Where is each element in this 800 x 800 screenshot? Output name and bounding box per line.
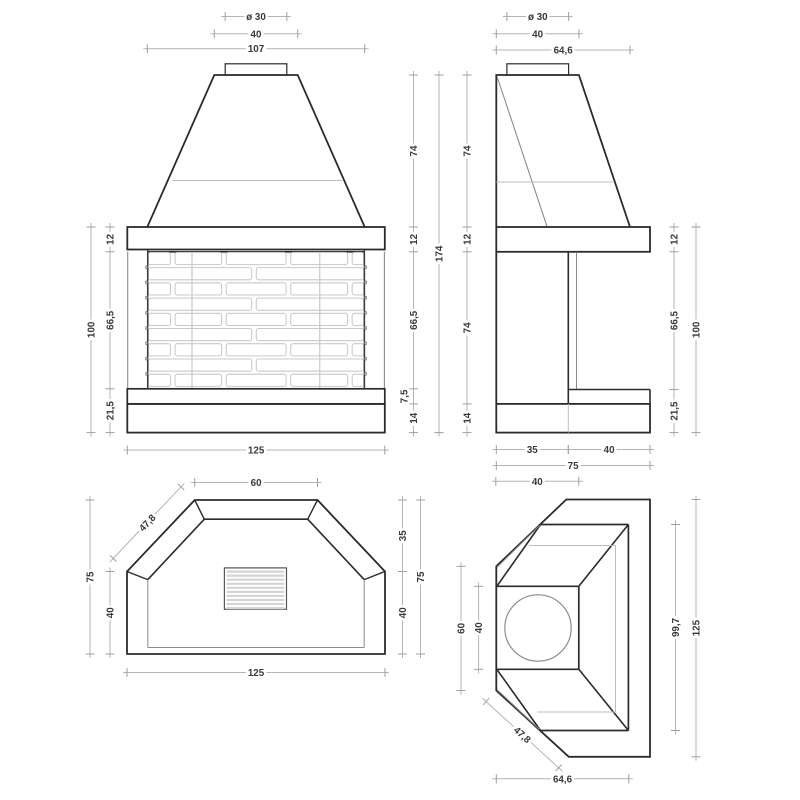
svg-text:125: 125: [248, 668, 265, 679]
svg-text:35: 35: [527, 445, 538, 456]
svg-text:12: 12: [463, 233, 474, 244]
svg-text:ø 30: ø 30: [528, 12, 548, 23]
svg-text:99,7: 99,7: [671, 617, 682, 637]
svg-text:21,5: 21,5: [670, 401, 681, 421]
svg-text:21,5: 21,5: [106, 401, 117, 421]
svg-text:12: 12: [409, 233, 420, 244]
svg-text:75: 75: [568, 461, 579, 472]
svg-text:40: 40: [532, 29, 543, 40]
svg-text:7,5: 7,5: [400, 389, 411, 403]
svg-text:12: 12: [106, 233, 117, 244]
svg-text:ø 30: ø 30: [246, 12, 266, 23]
svg-text:64,6: 64,6: [554, 46, 574, 57]
svg-text:125: 125: [692, 619, 703, 636]
svg-text:40: 40: [106, 607, 117, 618]
svg-text:40: 40: [474, 622, 485, 633]
svg-text:40: 40: [251, 29, 262, 40]
svg-text:75: 75: [416, 571, 427, 582]
svg-text:100: 100: [692, 321, 703, 338]
svg-text:66,5: 66,5: [106, 310, 117, 330]
svg-text:40: 40: [604, 445, 615, 456]
svg-text:12: 12: [670, 233, 681, 244]
svg-text:74: 74: [409, 145, 420, 156]
svg-text:125: 125: [248, 446, 265, 457]
svg-text:40: 40: [398, 607, 409, 618]
svg-text:64,6: 64,6: [553, 774, 573, 785]
svg-text:35: 35: [398, 530, 409, 541]
svg-text:107: 107: [248, 44, 265, 55]
svg-text:66,5: 66,5: [409, 310, 420, 330]
svg-text:75: 75: [86, 571, 97, 582]
svg-text:66,5: 66,5: [670, 311, 681, 331]
svg-text:174: 174: [435, 245, 446, 262]
svg-text:60: 60: [251, 478, 262, 489]
svg-text:14: 14: [463, 412, 474, 423]
svg-text:74: 74: [463, 322, 474, 333]
svg-text:100: 100: [87, 321, 98, 338]
svg-text:14: 14: [409, 412, 420, 423]
svg-text:74: 74: [463, 145, 474, 156]
svg-text:40: 40: [532, 477, 543, 488]
svg-text:60: 60: [457, 622, 468, 633]
